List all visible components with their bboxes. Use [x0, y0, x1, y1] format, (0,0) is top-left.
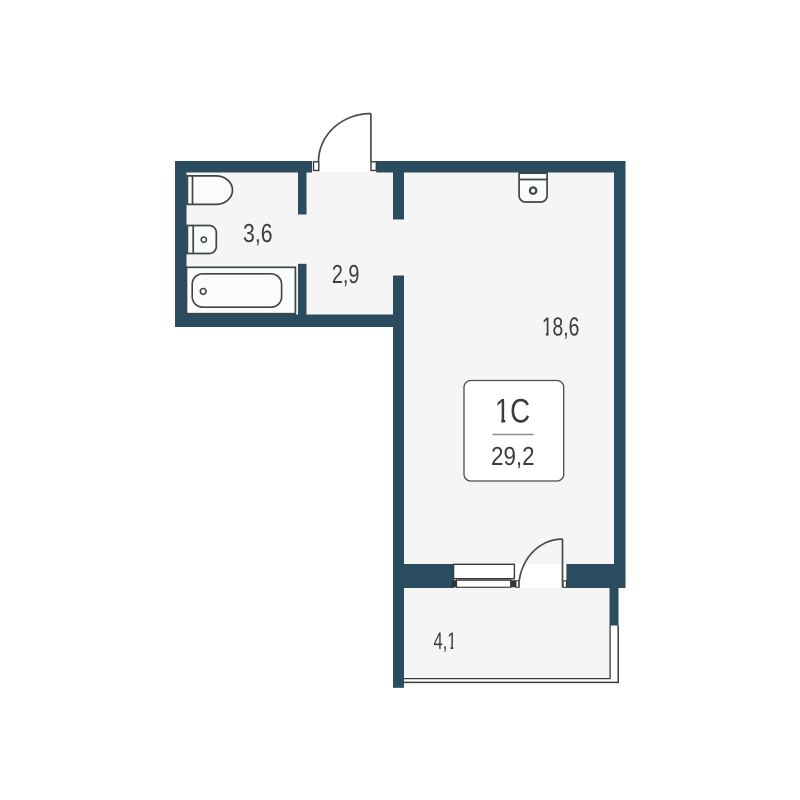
svg-text:1C: 1C: [495, 393, 530, 431]
svg-text:29,2: 29,2: [491, 441, 535, 471]
svg-text:18,6: 18,6: [542, 312, 580, 342]
svg-text:4,1: 4,1: [434, 628, 457, 655]
svg-text:2,9: 2,9: [332, 259, 360, 289]
svg-text:3,6: 3,6: [243, 218, 273, 248]
